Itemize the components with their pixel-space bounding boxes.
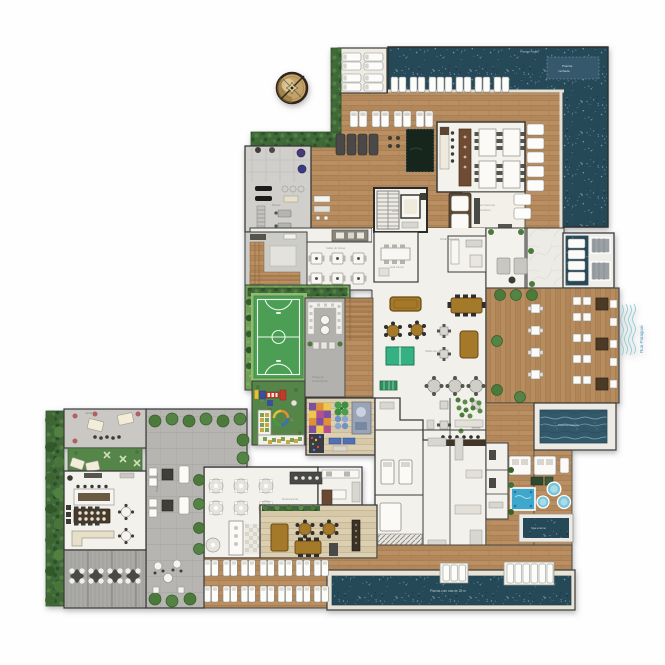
- svg-text:Hall social: Hall social: [390, 265, 404, 269]
- svg-text:Coberto: Coberto: [480, 208, 491, 212]
- svg-text:Bar Gourmet: Bar Gourmet: [478, 203, 495, 207]
- svg-text:molhada: molhada: [558, 69, 570, 73]
- svg-text:Deck: Deck: [392, 209, 399, 213]
- svg-text:Churrasqueira: Churrasqueira: [440, 237, 459, 241]
- svg-text:Piscina coberta: Piscina coberta: [558, 423, 579, 427]
- svg-text:Fitness: Fitness: [272, 203, 281, 207]
- svg-text:Rua Paraguai: Rua Paraguai: [639, 325, 644, 353]
- svg-text:Jardim: Jardim: [85, 411, 95, 415]
- svg-text:Piscina com raia de 25 m: Piscina com raia de 25 m: [430, 589, 466, 593]
- svg-text:Salão de festas: Salão de festas: [326, 246, 346, 250]
- svg-text:Prainha: Prainha: [562, 64, 573, 68]
- svg-text:Spa externo: Spa externo: [531, 526, 547, 530]
- svg-text:Restaurante: Restaurante: [282, 497, 299, 501]
- svg-text:convivência: convivência: [312, 379, 328, 383]
- svg-text:Piscina Adulto: Piscina Adulto: [520, 50, 539, 54]
